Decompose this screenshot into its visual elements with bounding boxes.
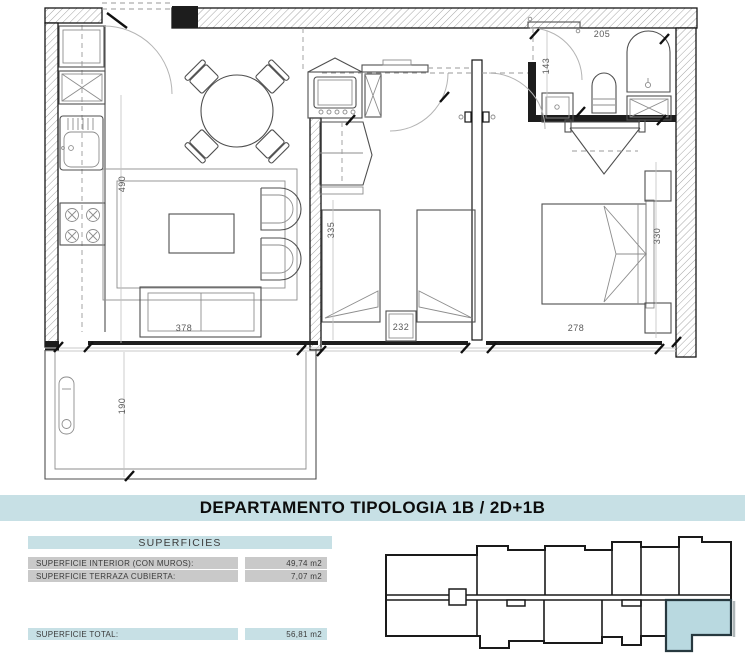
stove-icon [60,203,105,245]
bedroom-1 [542,120,671,333]
dim-bed1-width: 278 [568,323,585,333]
tick-marks [54,29,681,481]
single-bed-icon [417,210,475,322]
dim-living-depth: 490 [117,176,127,193]
page-title: DEPARTAMENTO TIPOLOGIA 1B / 2D+1B [200,498,546,518]
title-banner: DEPARTAMENTO TIPOLOGIA 1B / 2D+1B [0,495,745,521]
planter-icon [59,377,74,434]
dining-table [184,59,290,164]
wardrobe-icon [565,120,645,174]
toilet-icon [592,73,616,113]
dim-terrace-depth: 190 [117,398,127,415]
superficies-header: SUPERFICIES [28,536,332,549]
double-bed-icon [542,200,654,308]
dimension-labels: 490 378 335 232 278 330 190 205 143 [117,29,662,414]
surface-row-label: SUPERFICIE TERRAZA CUBIERTA: [28,570,238,582]
floor-plan-sheet: 490 378 335 232 278 330 190 205 143 DEPA… [0,0,745,659]
nightstand-icon [645,171,671,201]
dim-hall-depth: 143 [541,58,551,75]
floor-plan-drawing: 490 378 335 232 278 330 190 205 143 [0,0,745,492]
terrace [45,350,316,479]
windows [45,341,676,351]
nightstand-icon [645,303,671,333]
kitchen [59,25,105,332]
highlighted-unit [666,600,731,651]
armchair-icon [261,188,301,230]
dim-bath-width: 205 [594,29,611,39]
fridge-icon [59,26,104,67]
tv-unit-icon [308,72,362,118]
surface-row-value: 49,74 m2 [245,557,327,569]
surface-row-label: SUPERFICIE INTERIOR (CON MUROS): [28,557,238,569]
sink-icon [60,116,103,170]
dim-bed1-depth: 330 [652,228,662,245]
surface-total-label: SUPERFICIE TOTAL: [28,628,238,640]
dim-bed2-width: 232 [393,322,410,332]
armchair-icon [261,238,301,280]
dim-living-width: 378 [176,323,193,333]
surface-total-value: 56,81 m2 [245,628,327,640]
wardrobe-icon [365,74,381,117]
surface-row-value: 7,07 m2 [245,570,327,582]
living-room [103,169,301,337]
corner-desk-icon [320,122,372,194]
coffee-table [169,214,234,253]
sofa-icon [140,287,261,337]
dim-bed2-depth: 335 [326,222,336,239]
building-key-plan [362,531,738,659]
